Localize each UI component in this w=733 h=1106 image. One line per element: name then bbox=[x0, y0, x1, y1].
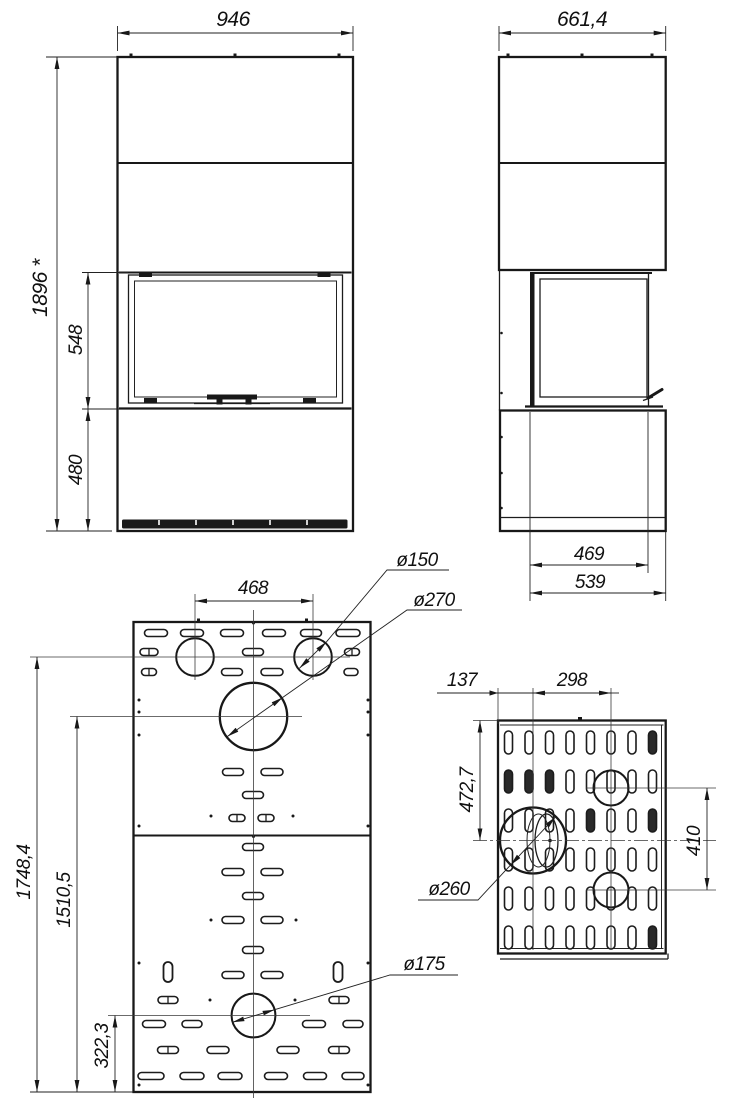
dim-side-depth: 661,4 bbox=[557, 8, 607, 31]
vent-slot bbox=[505, 887, 513, 910]
side-glass-section bbox=[525, 273, 663, 407]
seam-tab bbox=[234, 54, 237, 58]
front-firebox-door bbox=[119, 272, 352, 409]
vent-slot bbox=[243, 893, 264, 900]
dim-hole-spacing: 298 bbox=[556, 670, 588, 691]
dim-top-to-outlet: 472,7 bbox=[457, 766, 478, 813]
vent-slot bbox=[304, 1073, 327, 1080]
fastener-dot bbox=[210, 919, 213, 922]
vent-slot bbox=[182, 1021, 202, 1028]
vent-slot bbox=[334, 962, 343, 982]
vent-slot bbox=[546, 731, 554, 754]
seam-tab bbox=[507, 54, 510, 58]
dim-overall-height: 1896 * bbox=[29, 258, 52, 317]
vent-slot bbox=[261, 769, 283, 776]
fastener-dot bbox=[138, 734, 141, 737]
dim-glass-height: 548 bbox=[66, 324, 87, 355]
dim-flue-diameter: ø150 bbox=[396, 550, 438, 571]
side-view bbox=[499, 54, 666, 532]
vent-slot bbox=[243, 792, 264, 799]
fastener-dot bbox=[367, 711, 370, 714]
vent-slot bbox=[301, 630, 322, 637]
rear-vent-slots bbox=[138, 630, 364, 1080]
seam-tab bbox=[338, 54, 341, 58]
side-panel-view bbox=[498, 717, 668, 959]
vent-slot bbox=[261, 972, 283, 979]
vent-slot bbox=[138, 1073, 164, 1080]
dim-outlet-diameter: ø270 bbox=[413, 590, 455, 611]
vent-slot bbox=[343, 1021, 363, 1028]
vent-slot bbox=[505, 926, 513, 949]
vent-slot bbox=[218, 1073, 242, 1080]
fastener-dot bbox=[138, 1084, 141, 1087]
side-glass-pane bbox=[540, 279, 647, 397]
fastener-dot bbox=[210, 815, 213, 818]
fastener-dot bbox=[138, 962, 141, 965]
vent-slot bbox=[566, 809, 574, 832]
fastener-dot bbox=[292, 815, 295, 818]
vent-slot bbox=[164, 962, 173, 982]
dim-height-to-outlet: 1510,5 bbox=[54, 872, 75, 928]
grille-bar bbox=[122, 520, 348, 529]
hinge-block bbox=[139, 272, 152, 278]
dim-inner-depth: 469 bbox=[574, 544, 605, 565]
vent-slot bbox=[221, 630, 244, 637]
fastener-dot bbox=[367, 699, 370, 702]
vent-slot bbox=[525, 887, 533, 910]
vent-slot bbox=[261, 869, 283, 876]
vent-slot bbox=[145, 630, 168, 637]
door-frame bbox=[129, 275, 343, 403]
vent-slot bbox=[546, 770, 554, 793]
vent-slot bbox=[342, 1073, 364, 1080]
vent-slot bbox=[649, 731, 657, 754]
vent-slot bbox=[628, 926, 636, 949]
fastener-dot bbox=[367, 962, 370, 965]
seam-tab bbox=[581, 54, 584, 58]
technical-drawing: 946 661,4 1896 * 548 480 469 539 468 ø15… bbox=[0, 0, 733, 1106]
vent-slot bbox=[505, 731, 513, 754]
vent-slot bbox=[649, 848, 657, 871]
vent-slot bbox=[566, 848, 574, 871]
vent-slot bbox=[207, 1047, 229, 1054]
dim-edge-offset: 137 bbox=[447, 670, 479, 691]
vent-slot bbox=[587, 809, 595, 832]
dim-lower-hole-diameter: ø175 bbox=[403, 954, 445, 975]
fastener-dot bbox=[295, 919, 298, 922]
dim-front-width: 946 bbox=[216, 8, 250, 31]
vent-slot bbox=[243, 947, 264, 954]
fastener-dot bbox=[138, 711, 141, 714]
front-view bbox=[118, 54, 354, 532]
side-panel-outline bbox=[498, 721, 666, 954]
vent-slot bbox=[628, 848, 636, 871]
vent-slot bbox=[336, 630, 360, 637]
vent-slot bbox=[261, 669, 283, 676]
seam-tab bbox=[305, 619, 308, 623]
rear-panel-outline bbox=[134, 622, 371, 1092]
dim-flue-spacing: 468 bbox=[238, 578, 269, 599]
vent-slot bbox=[263, 630, 286, 637]
fastener-dot bbox=[367, 825, 370, 828]
fastener-dot bbox=[209, 999, 212, 1002]
drawing-sheet: 946 661,4 1896 * 548 480 469 539 468 ø15… bbox=[0, 0, 733, 1106]
dim-hole-vertical-spacing: 410 bbox=[684, 825, 705, 856]
vent-slot bbox=[566, 770, 574, 793]
fastener-dot bbox=[138, 825, 141, 828]
vent-slot bbox=[546, 926, 554, 949]
vent-slot bbox=[525, 848, 533, 871]
side-glass-mullion bbox=[530, 273, 535, 407]
handle-bar bbox=[207, 395, 257, 400]
vent-slot bbox=[628, 809, 636, 832]
vent-slot bbox=[525, 926, 533, 949]
vent-slot bbox=[243, 649, 264, 656]
dim-height-lower-hole: 322,3 bbox=[92, 1023, 113, 1069]
vent-slot bbox=[222, 869, 244, 876]
side-door-handle bbox=[648, 390, 662, 399]
vent-slot bbox=[143, 1021, 166, 1028]
front-body-outline bbox=[118, 57, 354, 531]
vent-slot bbox=[505, 770, 513, 793]
vent-slot bbox=[587, 731, 595, 754]
vent-slot bbox=[525, 809, 533, 832]
vent-slot bbox=[261, 917, 283, 924]
fastener-dot bbox=[367, 734, 370, 737]
vent-slot bbox=[649, 887, 657, 910]
dim-base-height: 480 bbox=[66, 454, 87, 485]
vent-slot bbox=[525, 731, 533, 754]
fastener-dot bbox=[294, 999, 297, 1002]
fastener-dot bbox=[367, 1084, 370, 1087]
latch-block bbox=[144, 398, 157, 404]
vent-slot bbox=[265, 1073, 288, 1080]
vent-slot bbox=[222, 669, 243, 676]
latch-block bbox=[303, 398, 316, 404]
vent-slot bbox=[222, 972, 244, 979]
vent-slot bbox=[628, 731, 636, 754]
seam-tab bbox=[651, 54, 654, 58]
vent-slot bbox=[344, 669, 358, 676]
vent-slot bbox=[303, 1021, 326, 1028]
dim-base-depth: 539 bbox=[575, 572, 606, 593]
front-vent-grille bbox=[122, 520, 348, 529]
vent-slot bbox=[243, 844, 264, 851]
vent-slot bbox=[525, 770, 533, 793]
vent-slot bbox=[223, 769, 244, 776]
vent-slot bbox=[566, 926, 574, 949]
vent-slot bbox=[649, 926, 657, 949]
fastener-dot bbox=[138, 699, 141, 702]
vent-slot bbox=[587, 848, 595, 871]
vent-slot bbox=[546, 887, 554, 910]
vent-slot bbox=[649, 809, 657, 832]
outside-arrow bbox=[490, 690, 499, 695]
vent-slot bbox=[587, 926, 595, 949]
dim-height-to-flues: 1748,4 bbox=[14, 844, 35, 899]
seam-tab bbox=[130, 54, 133, 58]
vent-slot bbox=[222, 917, 244, 924]
vent-slot bbox=[277, 1047, 299, 1054]
rear-panel-view bbox=[134, 619, 371, 1093]
vent-slot bbox=[566, 731, 574, 754]
dim-side-outlet-diameter: ø260 bbox=[428, 879, 470, 900]
vent-slot bbox=[649, 770, 657, 793]
seam-tab bbox=[197, 619, 200, 623]
vent-slot bbox=[181, 630, 204, 637]
door-glass bbox=[135, 281, 337, 397]
door-handle bbox=[194, 395, 270, 405]
vent-slot bbox=[566, 887, 574, 910]
side-pedestal bbox=[500, 411, 666, 532]
vent-slot bbox=[180, 1073, 204, 1080]
hinge-block bbox=[318, 272, 331, 278]
seam-tab bbox=[578, 717, 582, 721]
